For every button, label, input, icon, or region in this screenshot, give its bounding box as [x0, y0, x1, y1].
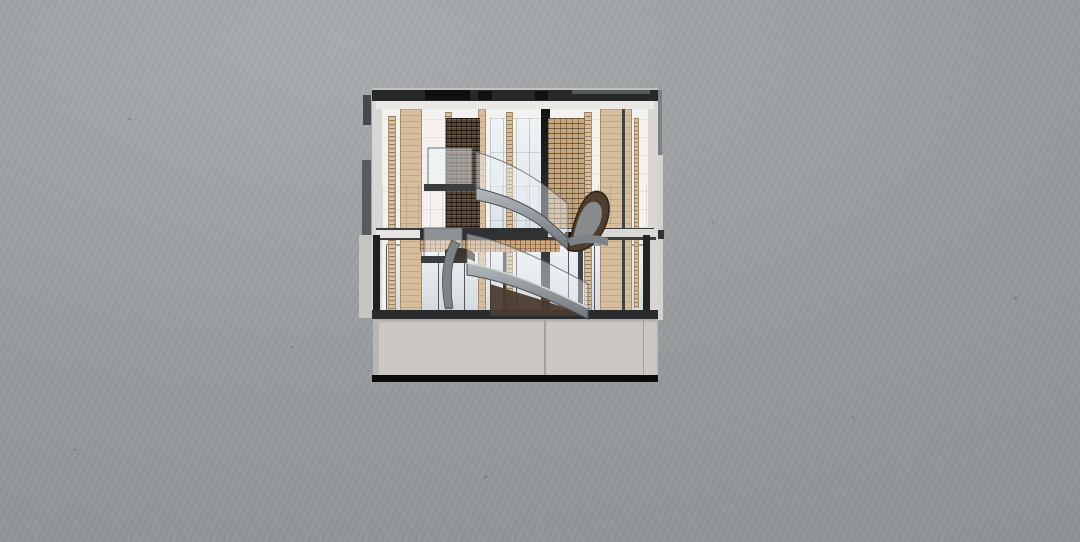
left-pilaster — [359, 235, 372, 318]
staircase — [372, 88, 658, 384]
building-section — [372, 88, 658, 384]
concrete-background — [0, 0, 1080, 542]
upper-landing-glass-guard — [428, 148, 472, 186]
left-fin-top — [363, 95, 371, 125]
left-fin-mid — [362, 160, 371, 235]
upper-landing-floor — [424, 184, 476, 191]
